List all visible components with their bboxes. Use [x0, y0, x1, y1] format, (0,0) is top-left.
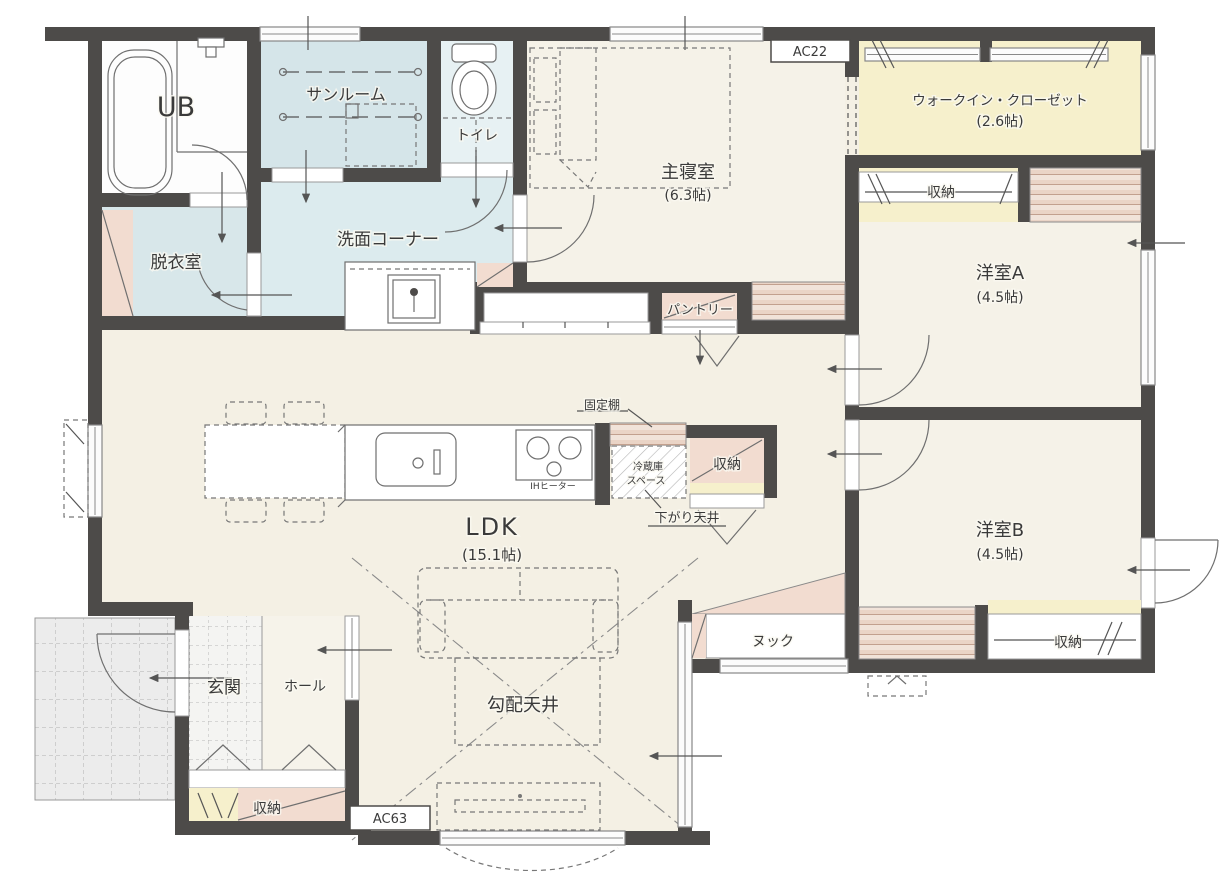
room-a-floor: [859, 222, 1141, 407]
label-storage-kitchen: 収納: [713, 457, 741, 473]
label-sloped-ceiling: 勾配天井: [487, 695, 559, 716]
vanity-counter: [345, 262, 475, 330]
shelf-unit-corridor: [752, 282, 845, 320]
storage-entrance-door: [189, 770, 345, 788]
door-dressing: [247, 253, 261, 316]
label-master-size: (6.3帖): [664, 188, 711, 204]
counter-niche: [484, 293, 648, 322]
bath-counter: [198, 38, 224, 47]
label-sunroom: サンルーム: [306, 85, 386, 104]
shelf-unit-room-b: [859, 607, 975, 659]
door-room-b-exterior: [1141, 538, 1155, 608]
label-room-b: 洋室B: [976, 520, 1024, 541]
label-room-b-size: (4.5帖): [976, 547, 1023, 563]
shelf-unit-room-a: [1030, 168, 1141, 222]
label-ih-heater: IHヒーター: [530, 481, 575, 492]
label-dressing: 脱衣室: [151, 253, 202, 273]
label-storage-entrance: 収納: [253, 801, 281, 817]
label-ldk: LDK: [465, 513, 519, 541]
exterior-mask-right: [1155, 0, 1229, 887]
label-fridge-2: スペース: [627, 476, 666, 487]
label-entrance: 玄関: [207, 678, 241, 698]
label-nook: ヌック: [752, 634, 794, 650]
door-room-a: [845, 335, 859, 405]
label-room-a: 洋室A: [976, 263, 1025, 284]
opening-sunroom: [272, 168, 343, 182]
toilet-bowl: [452, 61, 496, 115]
label-hall: ホール: [284, 679, 326, 695]
storage-entrance-step: [189, 788, 238, 821]
door-toilet: [441, 163, 513, 177]
label-washroom: 洗面コーナー: [337, 230, 439, 250]
label-fridge-1: 冷蔵庫: [633, 460, 663, 473]
label-toilet: トイレ: [456, 128, 498, 144]
label-ub: UB: [157, 92, 195, 123]
label-room-a-size: (4.5帖): [976, 290, 1023, 306]
label-storage-wic-row: 収納: [927, 185, 955, 201]
storage-kitchen-door: [690, 494, 764, 508]
label-pantry: パントリー: [667, 303, 733, 318]
storage-kitchen-step: [690, 483, 764, 494]
closet-room-b-step: [988, 600, 1141, 614]
door-room-b: [845, 420, 859, 490]
label-fixed-shelf: 固定棚: [584, 397, 620, 412]
door-entrance: [175, 630, 189, 716]
label-lowered-ceiling: 下がり天井: [654, 511, 719, 526]
label-ac63: AC63: [373, 812, 407, 827]
dining-table: [205, 425, 345, 498]
fixed-shelf: [610, 423, 686, 446]
door-ub: [190, 193, 247, 207]
exterior-mask-bottom: [0, 845, 1229, 887]
label-wic-size: (2.6帖): [976, 114, 1023, 130]
label-storage-room-b: 収納: [1054, 635, 1082, 651]
toilet-tank: [452, 44, 496, 62]
label-ac22: AC22: [793, 45, 827, 60]
label-ldk-size: (15.1帖): [462, 546, 522, 564]
label-wic: ウォークイン・クローゼット: [912, 93, 1088, 109]
label-master: 主寝室: [661, 162, 715, 183]
floor-plan: UB サンルーム トイレ 脱衣室 洗面コーナー 主寝室 (6.3帖) ウォークイ…: [0, 0, 1229, 887]
